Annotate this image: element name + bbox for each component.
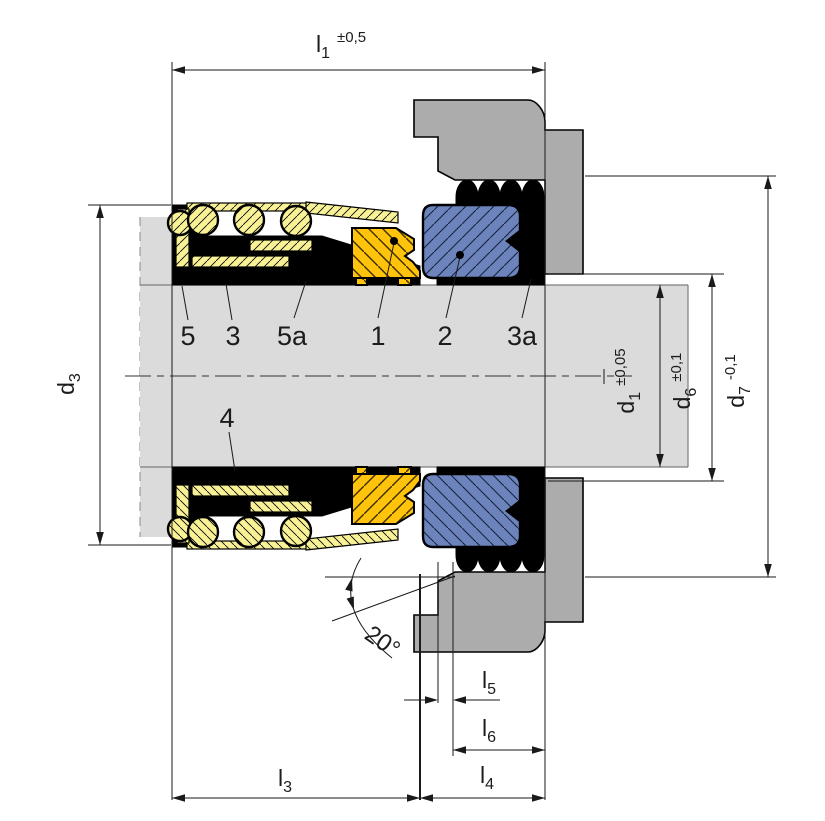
dim-l3-label: l3 — [278, 765, 292, 796]
seal-face-foot — [398, 278, 411, 285]
dim-d6-label: d6±0,1 — [668, 353, 700, 410]
leader-dot — [456, 251, 464, 259]
dim-l4-label: l4 — [480, 762, 494, 793]
band-lower-fold — [192, 256, 289, 267]
dim-l6-label: l6 — [482, 715, 496, 746]
technical-drawing-page: l1±0,5 d3 d1±0,05 d6±0,1 d7-0,1 l3 l4 l5… — [0, 0, 825, 821]
seal-assembly-top — [168, 100, 583, 285]
part-label-5a: 5a — [277, 321, 308, 351]
dim-d7-label: d7-0,1 — [722, 354, 754, 408]
part-label-2: 2 — [437, 321, 452, 351]
seal-face-ring — [352, 228, 420, 278]
dim-d3-label: d3 — [53, 373, 84, 395]
band-diagonal-strip — [306, 202, 398, 223]
band-upper-fold — [250, 240, 312, 251]
part-label-3a: 3a — [507, 321, 538, 351]
stationary-seat — [423, 205, 520, 278]
part-label-1: 1 — [370, 321, 385, 351]
dim-l1-label: l1±0,5 — [316, 29, 366, 62]
spring-coil — [281, 206, 311, 236]
part-label-5: 5 — [180, 321, 195, 351]
leader-dot — [390, 237, 398, 245]
dim-l5-label: l5 — [482, 667, 496, 698]
spring-coil — [188, 205, 218, 235]
dim-angle-label: 20° — [360, 620, 405, 663]
seal-face-foot — [356, 278, 367, 285]
seal-section-drawing: l1±0,5 d3 d1±0,05 d6±0,1 d7-0,1 l3 l4 l5… — [0, 0, 825, 821]
part-label-4: 4 — [219, 403, 234, 433]
part-label-3: 3 — [225, 321, 240, 351]
spring-coil — [234, 205, 264, 235]
